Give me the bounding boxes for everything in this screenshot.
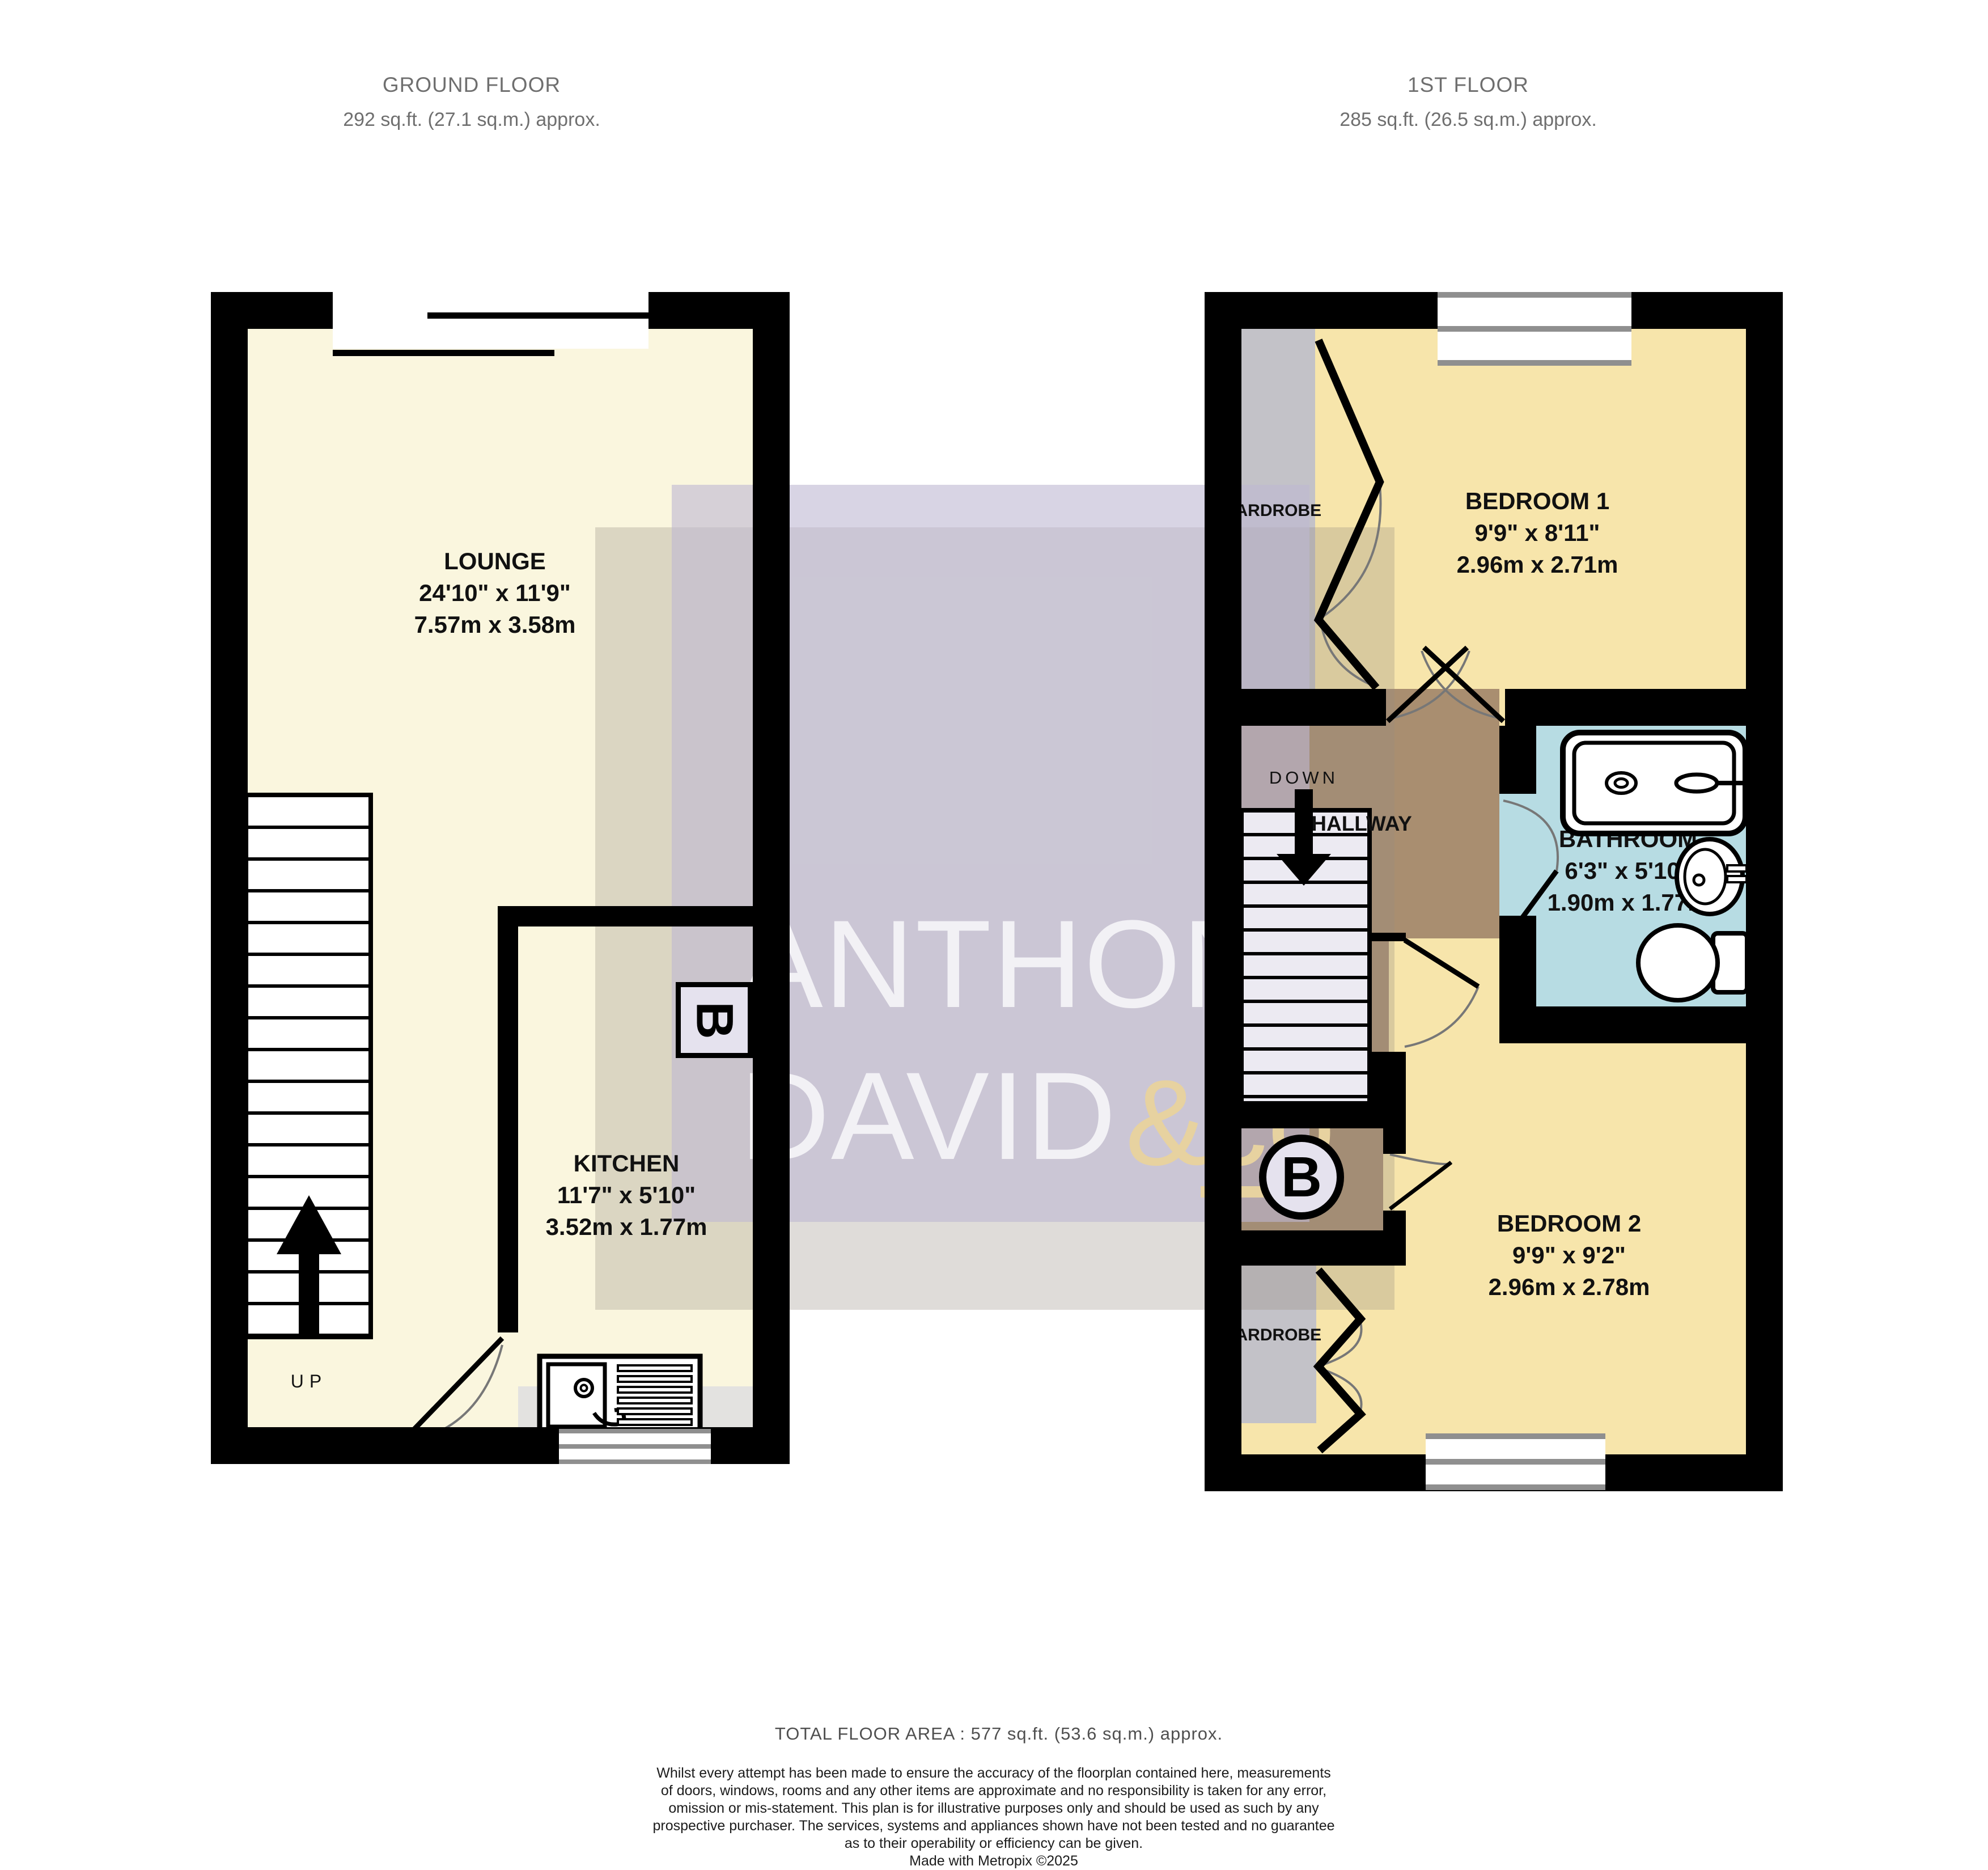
hallway-label: HALLWAY	[1311, 812, 1411, 836]
bedroom1-name: BEDROOM 1	[1457, 485, 1618, 517]
ff-bedroom2-window	[1426, 1433, 1605, 1490]
room-label-bedroom2: BEDROOM 2 9'9" x 9'2" 2.96m x 2.78m	[1489, 1208, 1650, 1303]
window-frame-line	[1426, 1484, 1605, 1490]
gf-wall-right	[753, 292, 790, 1464]
stairs-ground	[244, 793, 373, 1339]
room-label-bathroom: BATHROOM 6'3" x 5'10" 1.90m x 1.77m	[1548, 823, 1709, 919]
kitchen-imperial: 11'7" x 5'10"	[546, 1179, 707, 1211]
gf-wall-left	[211, 292, 248, 1464]
window-frame-line	[1438, 360, 1631, 366]
window-frame-line	[559, 1444, 711, 1449]
window-frame-line	[559, 1429, 711, 1433]
window-frame-line	[1438, 326, 1631, 332]
gf-opening-line-lower	[333, 350, 554, 356]
gf-kitchen-wall-horizontal	[498, 906, 753, 926]
bedroom2-name: BEDROOM 2	[1489, 1208, 1650, 1239]
ff-wall-right	[1746, 292, 1783, 1491]
window-frame-line	[1426, 1433, 1605, 1439]
disclaimer-line: prospective purchaser. The services, sys…	[652, 1817, 1334, 1835]
disclaimer-line: omission or mis-statement. This plan is …	[652, 1800, 1334, 1817]
kitchen-name: KITCHEN	[546, 1148, 707, 1179]
ff-cupboard-wall-right-a	[1383, 1128, 1406, 1154]
ff-bathroom-wall-left-upper	[1499, 726, 1536, 794]
window-frame-line	[559, 1459, 711, 1464]
lounge-metric: 7.57m x 3.58m	[414, 609, 576, 641]
ff-wall-left	[1205, 292, 1241, 1491]
bedroom2-imperial: 9'9" x 9'2"	[1489, 1239, 1650, 1271]
ff-bathroom-wall-left-lower	[1499, 916, 1536, 1006]
disclaimer-line: of doors, windows, rooms and any other i…	[652, 1782, 1334, 1800]
ff-cupboard-wall-top	[1241, 1106, 1406, 1128]
ff-bedroom1-wall-left	[1241, 689, 1386, 726]
gf-wall-top-left	[211, 292, 333, 329]
ff-cupboard-wall-right-b	[1383, 1211, 1406, 1230]
up-label: UP	[291, 1371, 327, 1392]
down-label: DOWN	[1269, 768, 1338, 788]
bathroom-metric: 1.90m x 1.77m	[1548, 887, 1709, 919]
ff-bedroom1-wall-right	[1505, 689, 1783, 726]
gf-kitchen-window	[559, 1429, 711, 1464]
bedroom2-metric: 2.96m x 2.78m	[1489, 1271, 1650, 1303]
watermark-word-david: DAVID	[740, 1054, 1117, 1178]
window-frame-line	[1426, 1459, 1605, 1465]
ff-bedroom1-window	[1438, 292, 1631, 366]
room-label-lounge: LOUNGE 24'10" x 11'9" 7.57m x 3.58m	[414, 545, 576, 641]
bathroom-imperial: 6'3" x 5'10"	[1548, 855, 1709, 887]
stairs-first	[1239, 808, 1372, 1106]
ground-floor-title: GROUND FLOOR	[343, 67, 600, 103]
bathroom-name: BATHROOM	[1548, 823, 1709, 855]
disclaimer-line: Whilst every attempt has been made to en…	[652, 1765, 1334, 1782]
gf-opening-line-upper	[427, 312, 648, 319]
first-floor-title: 1ST FLOOR	[1340, 67, 1597, 103]
kitchen-counter-strip	[518, 1386, 753, 1427]
lounge-imperial: 24'10" x 11'9"	[414, 577, 576, 609]
gf-top-opening	[333, 292, 648, 349]
ff-cupboard-wall-bottom	[1241, 1230, 1406, 1266]
boiler-ground-letter: B	[684, 1001, 744, 1039]
boiler-first-letter: B	[1281, 1145, 1322, 1210]
disclaimer-block: Whilst every attempt has been made to en…	[652, 1765, 1334, 1870]
window-frame-line	[1438, 292, 1631, 298]
lounge-name: LOUNGE	[414, 545, 576, 577]
ff-bedroom2-wall-stub-top	[1372, 933, 1406, 941]
bedroom1-imperial: 9'9" x 8'11"	[1457, 517, 1618, 549]
gf-kitchen-wall-vertical	[498, 906, 518, 1332]
total-floor-area: TOTAL FLOOR AREA : 577 sq.ft. (53.6 sq.m…	[775, 1724, 1223, 1744]
first-floor-header: 1ST FLOOR 285 sq.ft. (26.5 sq.m.) approx…	[1340, 67, 1597, 136]
floorplan-canvas: { "colors": { "floor_cream": "#faf6de", …	[0, 0, 1988, 1835]
kitchen-metric: 3.52m x 1.77m	[546, 1211, 707, 1243]
room-label-kitchen: KITCHEN 11'7" x 5'10" 3.52m x 1.77m	[546, 1148, 707, 1243]
disclaimer-line: as to their operability or efficiency ca…	[652, 1835, 1334, 1852]
room-label-bedroom1: BEDROOM 1 9'9" x 8'11" 2.96m x 2.71m	[1457, 485, 1618, 581]
first-floor-area: 285 sq.ft. (26.5 sq.m.) approx.	[1340, 103, 1597, 136]
boiler-symbol-ground: B	[676, 982, 753, 1058]
ff-bathroom-wall-bottom	[1499, 1006, 1783, 1043]
bedroom1-metric: 2.96m x 2.71m	[1457, 549, 1618, 581]
boiler-symbol-first: B	[1259, 1135, 1344, 1220]
metropix-credit: Made with Metropix ©2025	[652, 1852, 1334, 1870]
ground-floor-header: GROUND FLOOR 292 sq.ft. (27.1 sq.m.) app…	[343, 67, 600, 136]
ground-floor-area: 292 sq.ft. (27.1 sq.m.) approx.	[343, 103, 600, 136]
